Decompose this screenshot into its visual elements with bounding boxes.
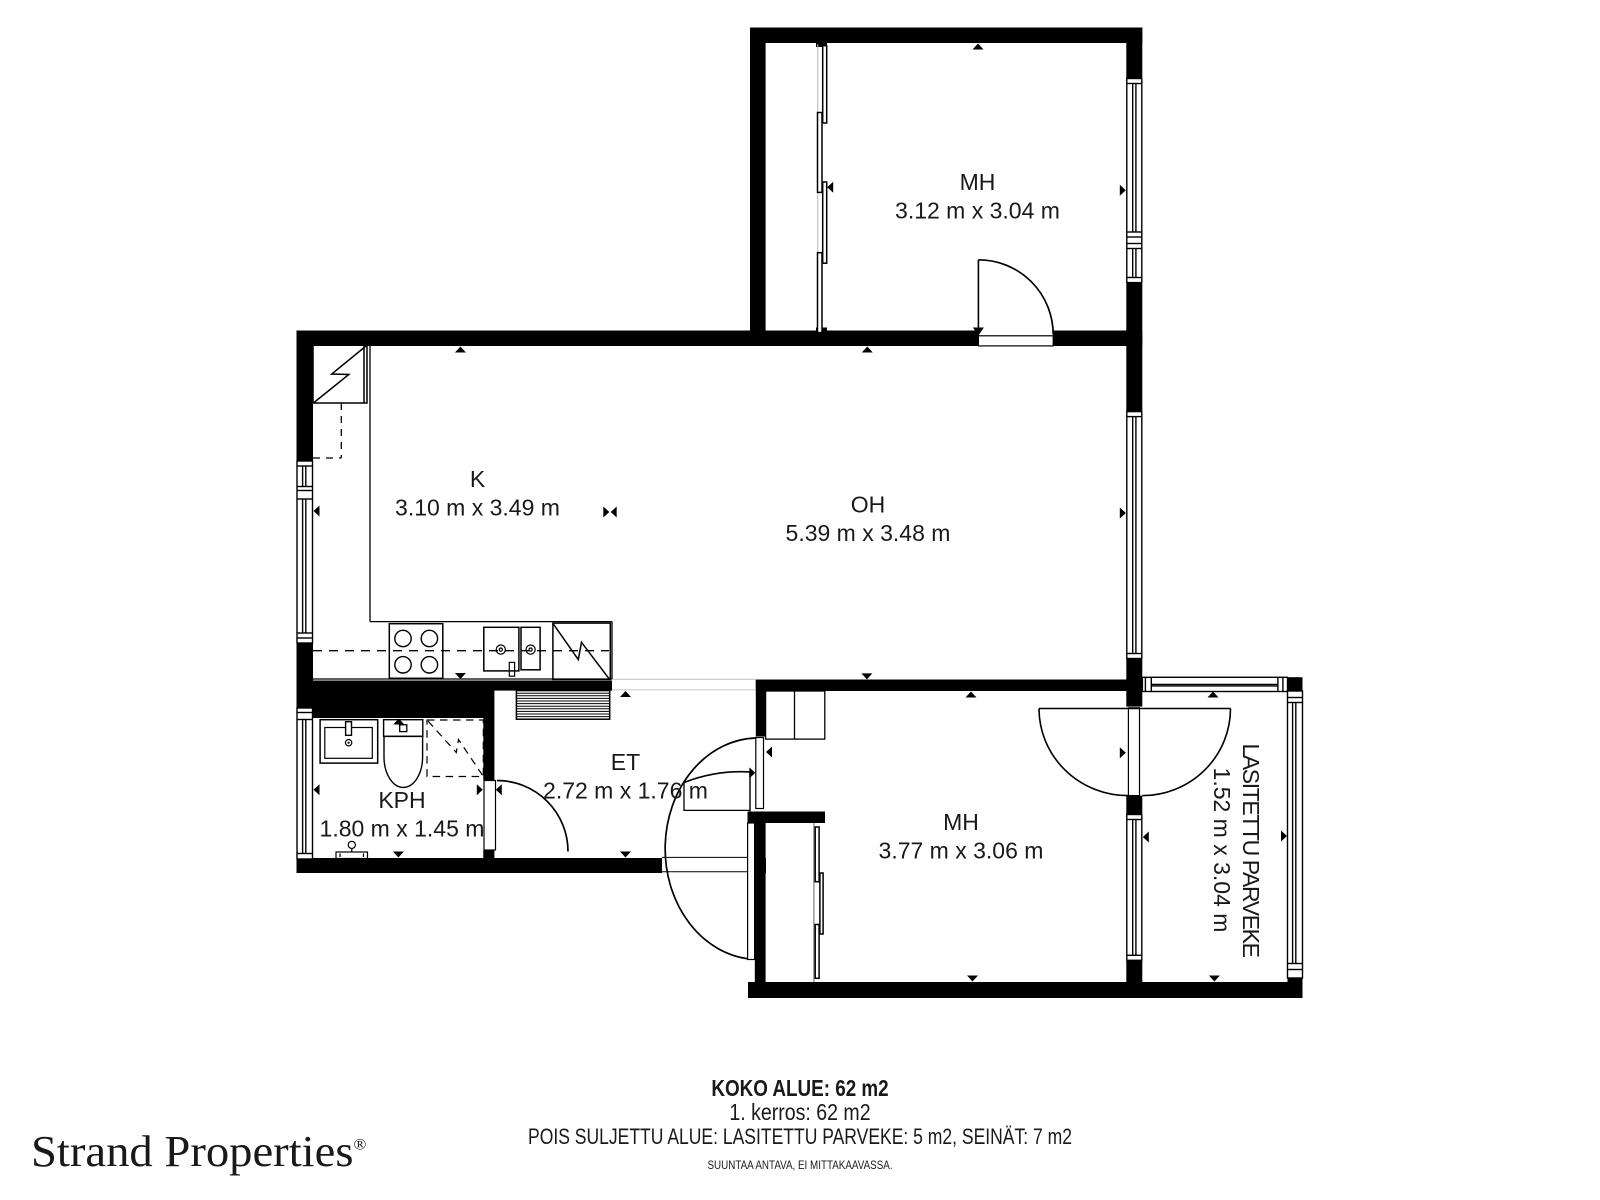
svg-text:MH: MH bbox=[943, 809, 979, 835]
svg-text:3.10 m x 3.49 m: 3.10 m x 3.49 m bbox=[395, 495, 560, 521]
svg-text:1.52 m x 3.04 m: 1.52 m x 3.04 m bbox=[1209, 768, 1235, 933]
svg-text:3.77 m x 3.06 m: 3.77 m x 3.06 m bbox=[879, 837, 1044, 863]
svg-text:3.12 m x 3.04 m: 3.12 m x 3.04 m bbox=[895, 198, 1060, 224]
svg-text:LASITETTU PARVEKE: LASITETTU PARVEKE bbox=[1238, 743, 1264, 957]
svg-text:2.72 m x 1.76 m: 2.72 m x 1.76 m bbox=[543, 778, 708, 804]
svg-text:ET: ET bbox=[611, 749, 640, 775]
svg-text:1.80 m x 1.45 m: 1.80 m x 1.45 m bbox=[320, 816, 485, 842]
svg-text:5.39 m x 3.48 m: 5.39 m x 3.48 m bbox=[786, 520, 951, 546]
svg-text:OH: OH bbox=[851, 492, 886, 518]
svg-text:Strand Properties®: Strand Properties® bbox=[31, 1127, 366, 1176]
svg-text:KOKO ALUE: 62 m2: KOKO ALUE: 62 m2 bbox=[711, 1076, 888, 1101]
svg-text:1. kerros: 62 m2: 1. kerros: 62 m2 bbox=[729, 1100, 870, 1126]
svg-text:POIS SULJETTU ALUE: LASITETTU: POIS SULJETTU ALUE: LASITETTU PARVEKE: 5… bbox=[528, 1125, 1072, 1150]
svg-text:KPH: KPH bbox=[378, 787, 425, 813]
svg-text:K: K bbox=[470, 466, 486, 492]
svg-text:MH: MH bbox=[960, 169, 996, 195]
svg-text:SUUNTAA ANTAVA, EI MITTAKAAVAS: SUUNTAA ANTAVA, EI MITTAKAAVASSA. bbox=[707, 1159, 892, 1172]
